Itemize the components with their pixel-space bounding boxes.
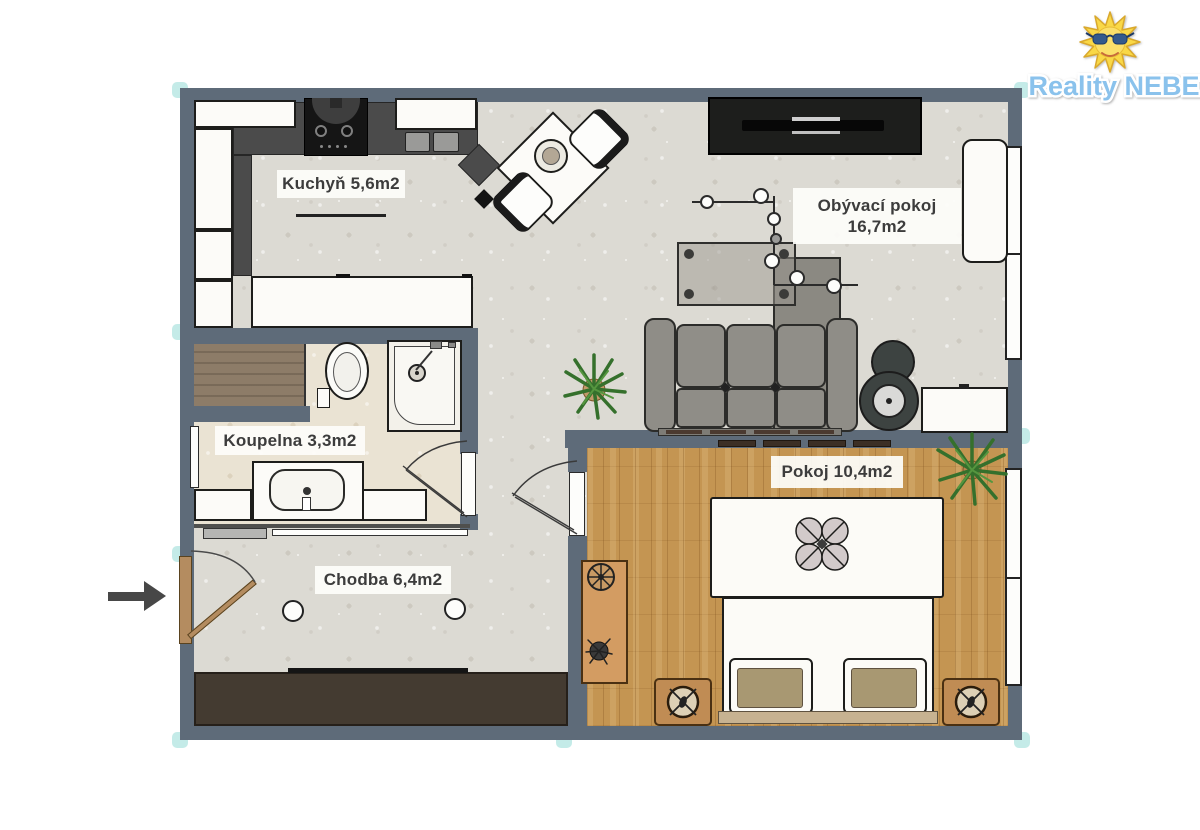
kitchen-cabinet bbox=[194, 100, 296, 128]
stove-knob bbox=[328, 145, 331, 148]
sofa-seat-cushion bbox=[676, 388, 726, 428]
sliding-rail bbox=[272, 529, 468, 536]
room-label-bathroom: Koupelna 3,3m2 bbox=[215, 426, 365, 455]
stove-hood-vent bbox=[330, 98, 342, 108]
kitchen-cabinet bbox=[194, 230, 233, 280]
shower-tray bbox=[394, 346, 455, 425]
room-label-living-room: Obývací pokoj 16,7m2 bbox=[793, 188, 961, 244]
bathroom-door-jamb bbox=[461, 452, 476, 516]
sofa-back-cushion bbox=[726, 324, 776, 388]
kitchen-cabinet bbox=[194, 280, 233, 328]
bedroom-left-wall-upper bbox=[568, 430, 587, 472]
island-handle bbox=[462, 274, 472, 278]
entrance-arrow-head-icon bbox=[144, 581, 166, 611]
faucet-base bbox=[302, 497, 311, 511]
sofa-base-trim bbox=[666, 430, 702, 434]
sideboard bbox=[921, 387, 1008, 433]
stove-knob bbox=[320, 145, 323, 148]
room-label-text: Chodba 6,4m2 bbox=[324, 569, 443, 590]
room-label-kitchen: Kuchyň 5,6m2 bbox=[277, 170, 405, 198]
kitchen-counter-left bbox=[233, 155, 252, 276]
entrance-arrow-icon bbox=[108, 592, 144, 601]
sun-icon bbox=[1080, 12, 1140, 72]
ceiling-light bbox=[444, 598, 466, 620]
toilet-flush bbox=[317, 388, 330, 408]
kitchen-sink-cabinet bbox=[395, 98, 477, 130]
table-leg bbox=[779, 289, 789, 299]
nightstand bbox=[654, 678, 712, 726]
sofa-base-trim bbox=[754, 430, 790, 434]
kitchen-island bbox=[251, 276, 473, 328]
ceiling-light bbox=[282, 600, 304, 622]
bed-headboard bbox=[718, 711, 938, 724]
stove-burner bbox=[315, 125, 327, 137]
kitchen-shelf-line bbox=[296, 214, 386, 217]
coffee-table bbox=[677, 242, 796, 306]
stove-burner bbox=[341, 125, 353, 137]
brand-logo-text: Reality NEBE bbox=[1028, 71, 1199, 101]
room-label-area: 16,7m2 bbox=[848, 216, 907, 237]
room-label-text: Kuchyň 5,6m2 bbox=[282, 173, 400, 194]
radiator bbox=[203, 528, 267, 539]
hallway-wardrobe bbox=[194, 672, 568, 726]
table-leg bbox=[779, 249, 789, 259]
bathroom-right-wall bbox=[460, 328, 478, 454]
stove-knob bbox=[336, 145, 339, 148]
room-label-text: Pokoj 10,4m2 bbox=[781, 461, 892, 482]
room-label-text: Obývací pokoj bbox=[818, 195, 937, 216]
bathroom-wall-radiator bbox=[190, 426, 199, 488]
tv-stand bbox=[792, 117, 840, 121]
bedroom-window bbox=[1005, 468, 1022, 686]
window-mullion bbox=[1007, 253, 1020, 255]
sofa-seat-cushion bbox=[726, 388, 776, 428]
floor-plan-page: Kuchyň 5,6m2 Obývací pokoj 16,7m2 Koupel… bbox=[0, 0, 1200, 830]
table-bowl-inner bbox=[542, 147, 560, 165]
wardrobe-rail bbox=[288, 668, 468, 673]
brand-logo: Reality NEBE bbox=[1022, 6, 1200, 106]
room-label-text: Koupelna 3,3m2 bbox=[223, 430, 356, 451]
nightstand bbox=[942, 678, 1000, 726]
sofa-armrest bbox=[826, 318, 858, 432]
wall-shelf bbox=[763, 440, 801, 447]
shower-fixture bbox=[448, 342, 456, 348]
tv-stand bbox=[792, 131, 840, 134]
sink-basin bbox=[433, 132, 459, 152]
sofa-base-trim bbox=[798, 430, 834, 434]
window-mullion bbox=[1007, 577, 1020, 579]
shower-fixture bbox=[430, 341, 442, 349]
toilet-bowl bbox=[333, 352, 361, 392]
bedroom-door-jamb bbox=[569, 472, 585, 536]
sofa-back-cushion bbox=[776, 324, 826, 388]
kitchen-fridge bbox=[194, 128, 233, 230]
closet-bottom-wall bbox=[194, 406, 310, 422]
sink-basin bbox=[405, 132, 430, 152]
bathroom-cabinet bbox=[194, 489, 252, 521]
table-leg bbox=[684, 249, 694, 259]
sofa-base-trim bbox=[710, 430, 746, 434]
room-label-bedroom: Pokoj 10,4m2 bbox=[771, 456, 903, 488]
island-handle bbox=[336, 274, 350, 278]
sofa-seat-cushion bbox=[776, 388, 826, 428]
shower-head-center bbox=[415, 371, 419, 375]
bathroom-cabinet bbox=[362, 489, 427, 521]
table-leg bbox=[684, 289, 694, 299]
wall-shelf bbox=[808, 440, 846, 447]
desk bbox=[581, 560, 628, 684]
faucet bbox=[303, 487, 311, 495]
tall-cabinet bbox=[962, 139, 1008, 263]
pillow-cushion bbox=[737, 668, 803, 708]
pillow-cushion bbox=[851, 668, 917, 708]
sofa-back-cushion bbox=[676, 324, 726, 388]
sofa-armrest bbox=[644, 318, 676, 432]
wall-shelf bbox=[853, 440, 891, 447]
tv bbox=[742, 120, 884, 131]
sideboard-handle bbox=[959, 384, 969, 389]
stove-knob bbox=[344, 145, 347, 148]
wall-shelf bbox=[718, 440, 756, 447]
bed-blanket bbox=[710, 497, 944, 598]
room-label-hallway: Chodba 6,4m2 bbox=[315, 566, 451, 594]
floor-lamp-pole bbox=[886, 398, 892, 404]
